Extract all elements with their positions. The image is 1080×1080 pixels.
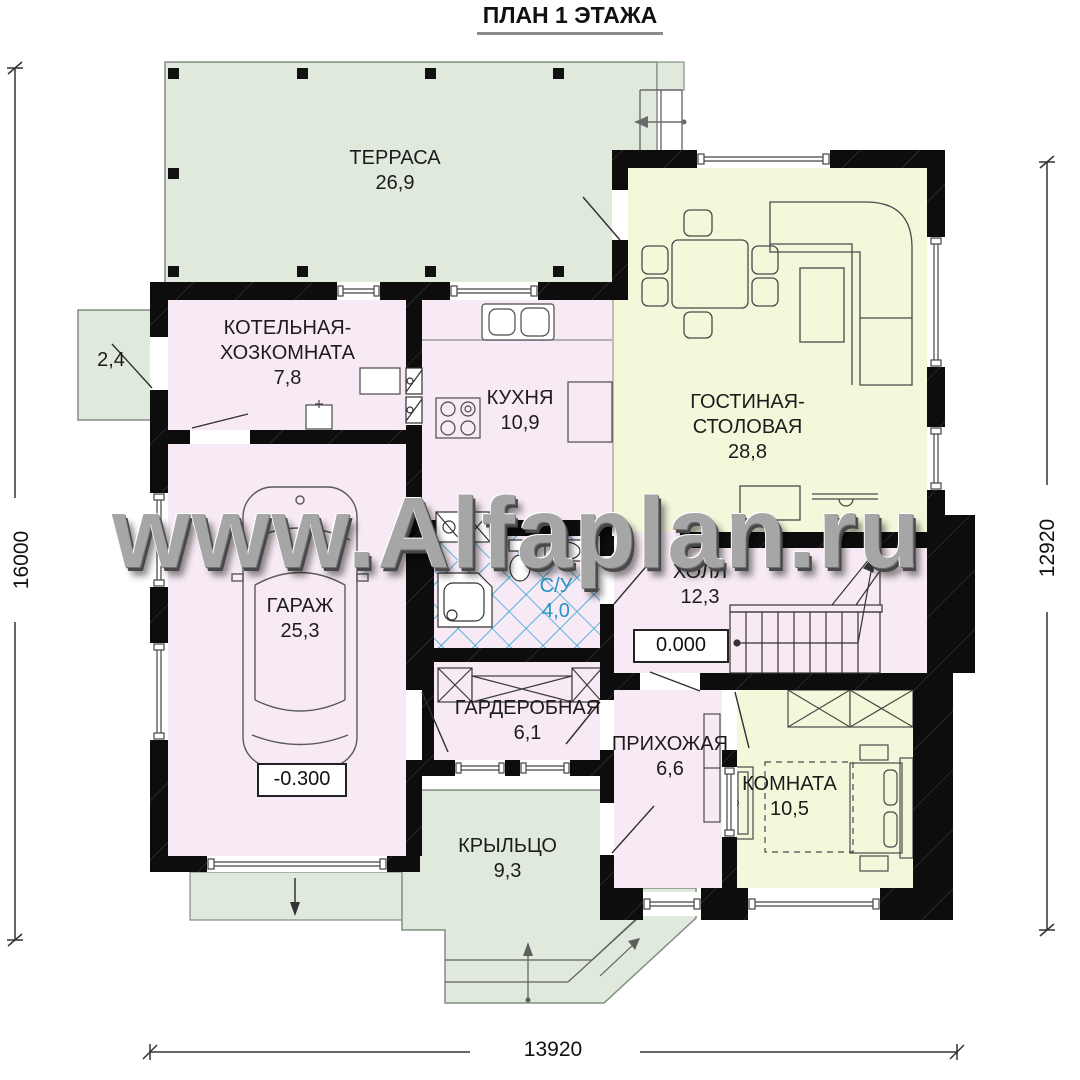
window — [520, 760, 570, 776]
window — [150, 643, 168, 740]
terrace-name: ТЕРРАСА — [280, 146, 510, 171]
window — [450, 282, 538, 300]
window — [643, 892, 701, 916]
dimension-bottom: 13920 — [478, 1038, 628, 1062]
dimension-right: 12920 — [1036, 488, 1060, 608]
room-label-bedroom: КОМНАТА 10,5 — [702, 772, 877, 822]
porch-area: 9,3 — [410, 859, 605, 884]
bathroom-area: 4,0 — [516, 599, 596, 624]
bedroom-name: КОМНАТА — [702, 772, 877, 797]
boiler-kitchen-doors — [406, 368, 422, 423]
floor-drain — [306, 405, 332, 429]
window — [697, 150, 830, 168]
room-label-porch: КРЫЛЬЦО 9,3 — [410, 834, 605, 884]
page-title-text: ПЛАН 1 ЭТАЖА — [477, 2, 663, 35]
living-name-line2: СТОЛОВАЯ — [640, 415, 855, 440]
window — [927, 237, 945, 367]
garage-door — [207, 856, 387, 872]
porch-name: КРЫЛЬЦО — [410, 834, 605, 859]
bedroom-area: 10,5 — [702, 797, 877, 822]
room-label-garage: ГАРАЖ 25,3 — [210, 594, 390, 644]
window — [748, 892, 880, 916]
boiler-name-line1: КОТЕЛЬНАЯ- — [170, 316, 405, 341]
driveway-area — [190, 872, 403, 920]
room-label-boiler: КОТЕЛЬНАЯ- ХОЗКОМНАТА 7,8 — [170, 316, 405, 391]
window — [455, 760, 505, 776]
garage-area: 25,3 — [210, 619, 390, 644]
window — [337, 282, 380, 300]
garage-level-mark: -0.300 — [257, 763, 347, 797]
hall-level-mark: 0.000 — [633, 629, 729, 663]
room-label-terrace: ТЕРРАСА 26,9 — [280, 146, 510, 196]
dimension-left: 16000 — [10, 500, 34, 620]
terrace-area: 26,9 — [280, 171, 510, 196]
garage-name: ГАРАЖ — [210, 594, 390, 619]
living-area: 28,8 — [640, 440, 855, 465]
boiler-area: 7,8 — [170, 366, 405, 391]
wardrobe-name: ГАРДЕРОБНАЯ — [420, 696, 635, 721]
watermark: www.Alfaplan.ru — [112, 476, 922, 591]
platform-area: 2,4 — [82, 348, 140, 373]
boiler-name-line2: ХОЗКОМНАТА — [170, 341, 405, 366]
window — [927, 427, 945, 490]
kitchen-name: КУХНЯ — [435, 386, 605, 411]
room-label-kitchen: КУХНЯ 10,9 — [435, 386, 605, 436]
room-label-platform: 2,4 — [82, 348, 140, 373]
kitchen-area: 10,9 — [435, 411, 605, 436]
room-label-living: ГОСТИНАЯ- СТОЛОВАЯ 28,8 — [640, 390, 855, 465]
floor-plan-page: ПЛАН 1 ЭТАЖА ТЕРРАСА 26,9 2,4 КОТЕЛЬНАЯ-… — [0, 0, 1080, 1080]
living-name-line1: ГОСТИНАЯ- — [640, 390, 855, 415]
page-title: ПЛАН 1 ЭТАЖА — [420, 2, 720, 29]
entry-name: ПРИХОЖАЯ — [590, 732, 750, 757]
